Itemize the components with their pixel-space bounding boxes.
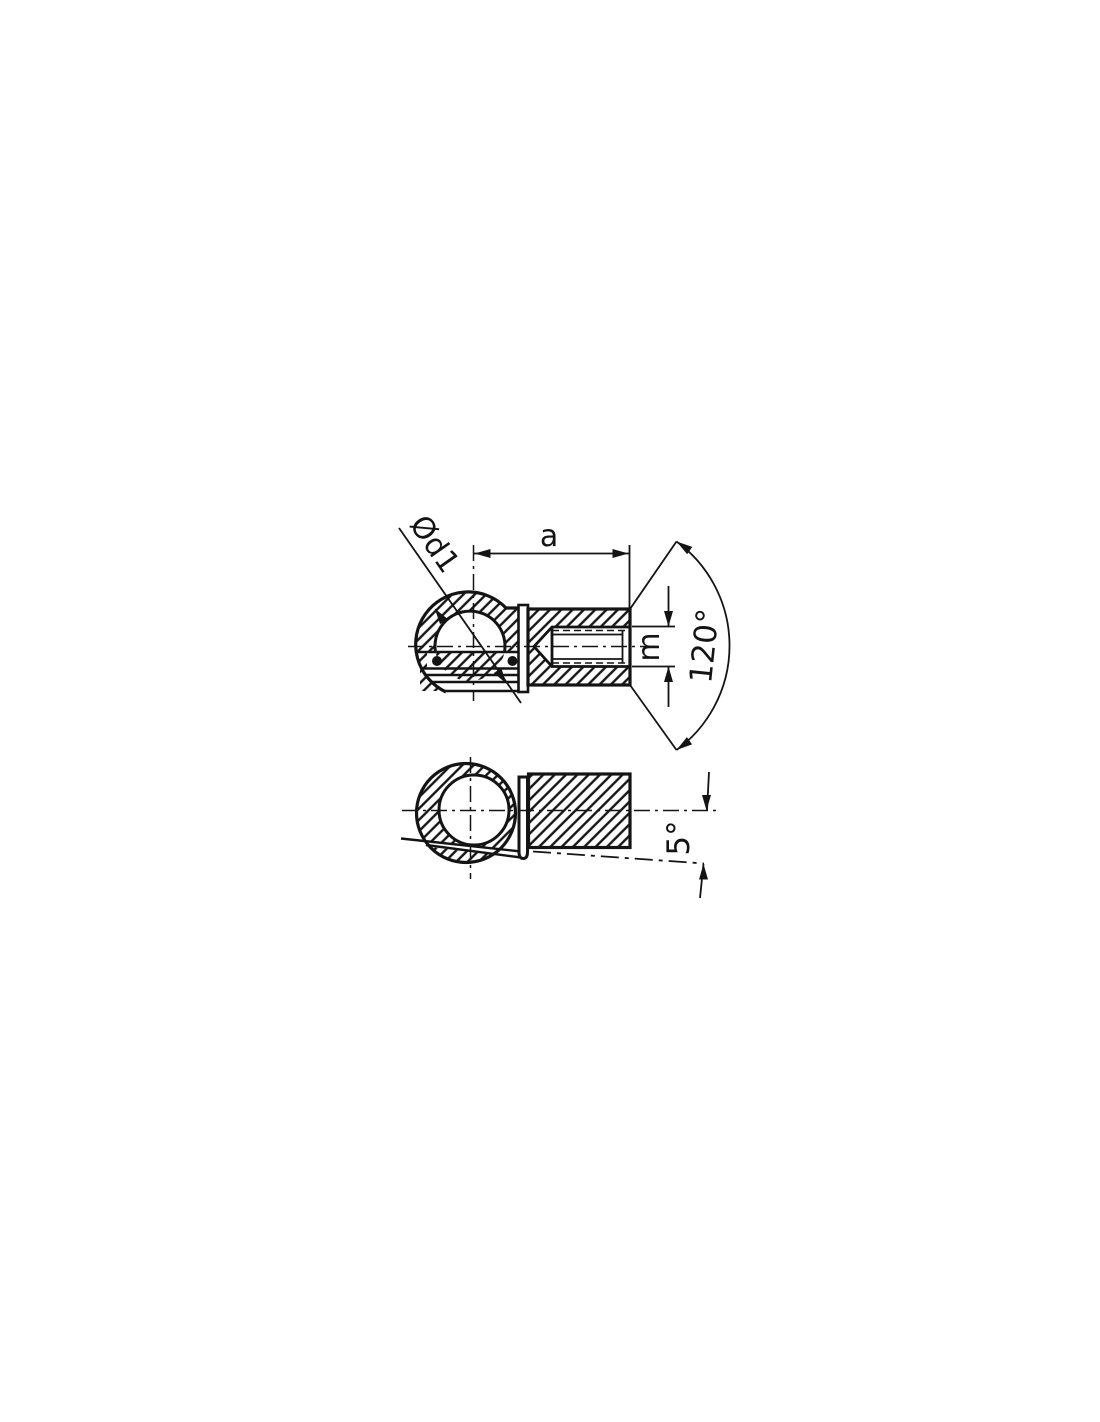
clip-wire-dot-left (432, 656, 442, 666)
dim-a-label: a (540, 519, 558, 554)
dim-a-arrow-left (475, 549, 491, 558)
drawing-page: a Ød1 m 120° (0, 0, 1100, 1422)
dim-a-line (474, 545, 630, 608)
dim-m-arrow-bottom (664, 667, 673, 683)
dim-m-arrow-top (664, 611, 673, 627)
swing-arrow-bottom (699, 864, 708, 880)
dimension-m: m (632, 586, 675, 707)
bottom-view (401, 757, 716, 879)
cone-angle-label: 120° (683, 607, 727, 685)
dim-a-arrow-right (613, 549, 629, 558)
technical-drawing: a Ød1 m 120° (0, 0, 1100, 1422)
dim-d1-label: Ød1 (402, 509, 466, 580)
clip-pin (519, 777, 528, 859)
swing-arrow-top (702, 795, 711, 811)
clip-wire-dot-right (508, 656, 518, 666)
swing-angle-label: 5° (661, 820, 697, 855)
dim-m-label: m (632, 632, 667, 661)
dimension-a: a (474, 519, 630, 608)
dimension-swing-angle: 5° (661, 772, 711, 898)
